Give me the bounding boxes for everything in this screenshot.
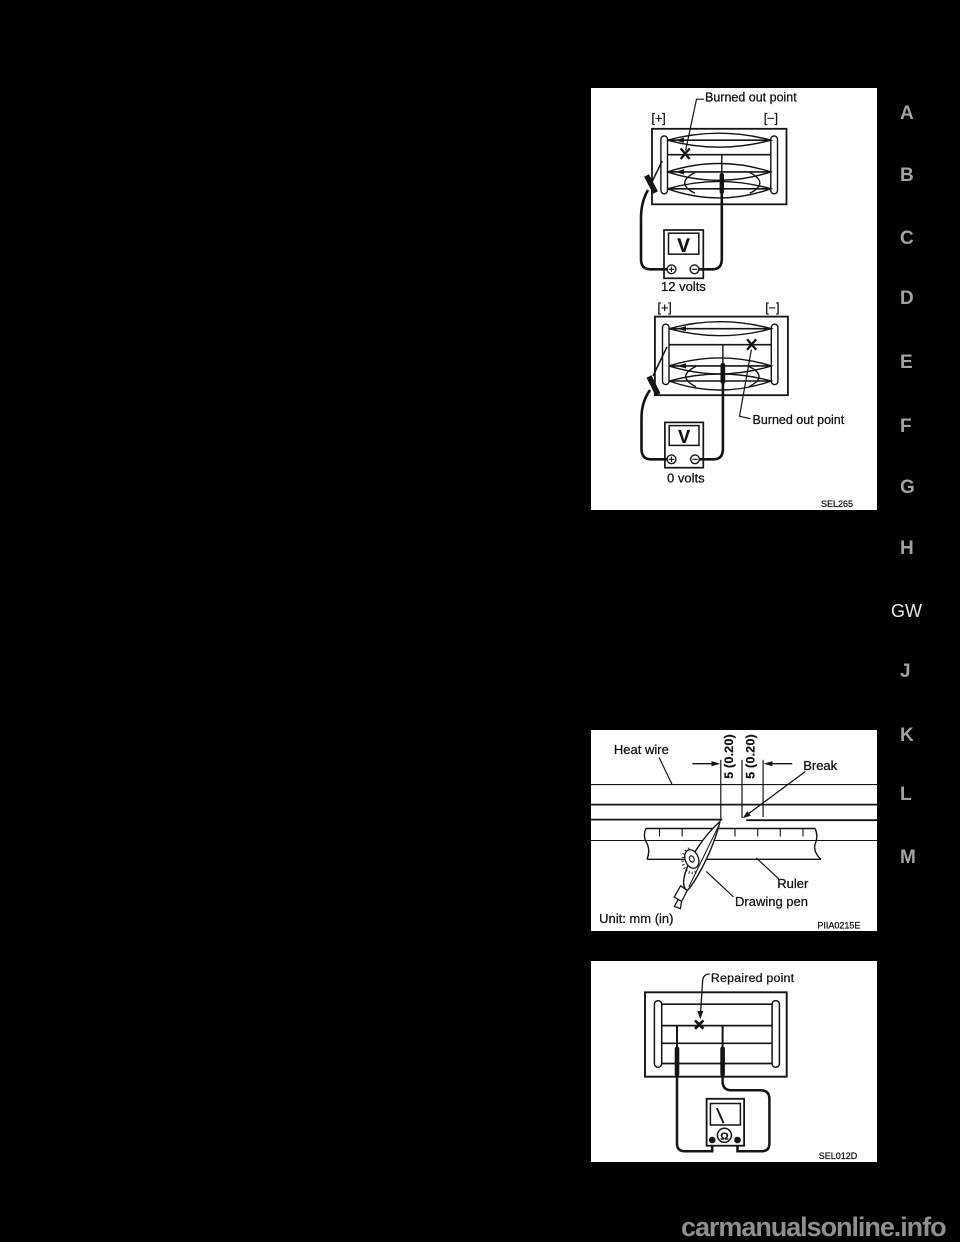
svg-text:Ruler: Ruler	[777, 876, 809, 891]
svg-text:[+]: [+]	[658, 301, 672, 315]
svg-text:[−]: [−]	[764, 112, 778, 126]
svg-text:0 volts: 0 volts	[667, 471, 705, 486]
svg-text:SEL012D: SEL012D	[819, 1151, 858, 1161]
svg-text:5 (0.20): 5 (0.20)	[743, 734, 757, 779]
svg-text:[+]: [+]	[652, 112, 666, 126]
svg-text:PIIA0215E: PIIA0215E	[817, 921, 860, 931]
svg-text:Unit: mm (in): Unit: mm (in)	[599, 911, 673, 926]
svg-text:SEL265: SEL265	[821, 499, 853, 509]
svg-text:Break: Break	[803, 758, 837, 773]
svg-text:[−]: [−]	[765, 301, 779, 315]
svg-text:Heat wire: Heat wire	[614, 742, 669, 757]
svg-text:V: V	[678, 427, 690, 447]
svg-text:Drawing pen: Drawing pen	[735, 894, 808, 909]
svg-text:Burned out point: Burned out point	[705, 91, 797, 105]
svg-text:5 (0.20): 5 (0.20)	[722, 734, 736, 779]
svg-text:Ω: Ω	[720, 1131, 728, 1143]
svg-text:Burned out point: Burned out point	[753, 413, 845, 427]
svg-text:V: V	[677, 236, 690, 257]
svg-text:Repaired point: Repaired point	[711, 971, 795, 985]
svg-text:12 volts: 12 volts	[661, 279, 706, 294]
